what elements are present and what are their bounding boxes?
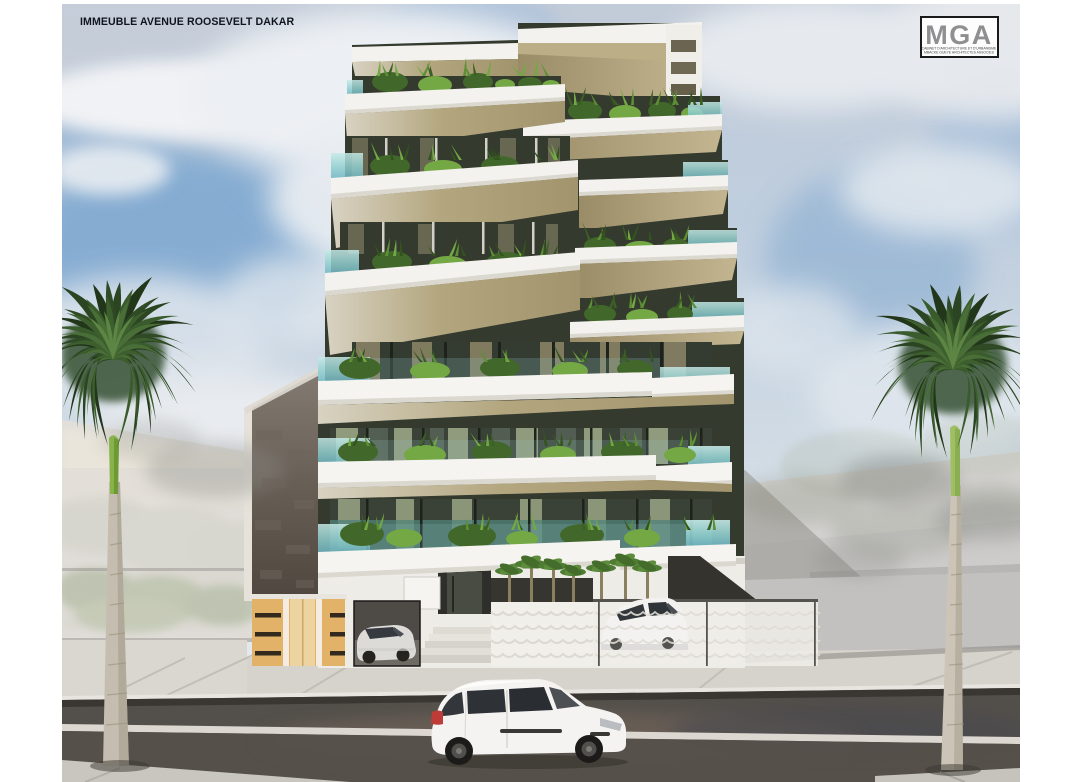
svg-text:MBACKE GUEYE ARCHITECTES ASSOC: MBACKE GUEYE ARCHITECTES ASSOCIES xyxy=(924,51,995,55)
svg-text:MGA: MGA xyxy=(925,20,993,50)
svg-text:IMMEUBLE AVENUE ROOSEVELT DAKA: IMMEUBLE AVENUE ROOSEVELT DAKAR xyxy=(80,16,294,28)
